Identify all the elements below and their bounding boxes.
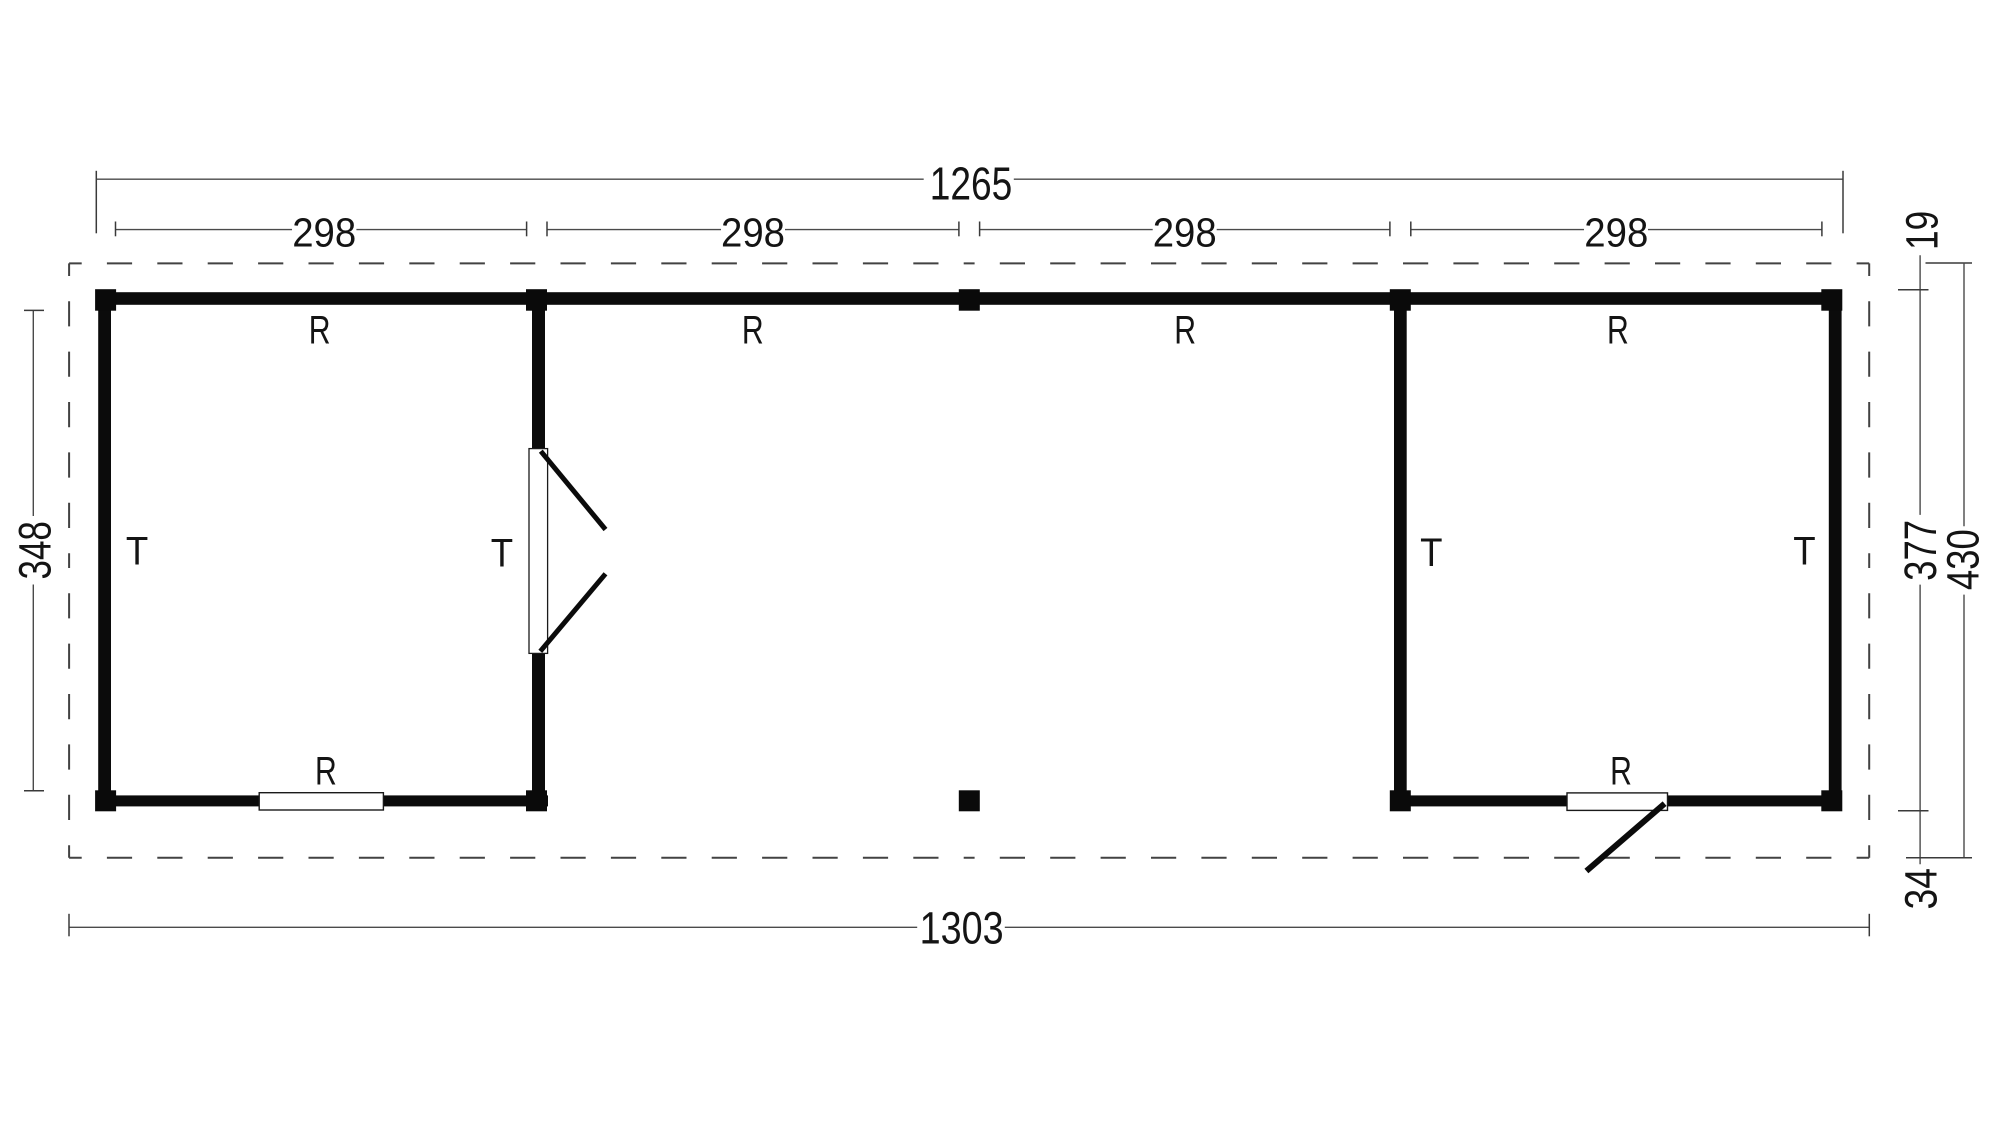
svg-text:19: 19 [1896,211,1947,250]
svg-text:.: . [1992,1113,1995,1124]
svg-text:298: 298 [721,209,785,255]
svg-text:R: R [1607,309,1629,353]
svg-text:T: T [1793,530,1815,574]
svg-text:298: 298 [1153,209,1217,255]
svg-text:T: T [1420,531,1442,575]
svg-text:R: R [1610,750,1632,794]
svg-text:298: 298 [1584,209,1648,255]
svg-text:T: T [491,532,513,576]
svg-text:430: 430 [1937,529,1988,590]
svg-text:T: T [126,530,148,574]
svg-text:R: R [742,309,764,353]
svg-text:298: 298 [292,209,356,255]
svg-text:R: R [1174,309,1196,353]
svg-text:348: 348 [9,521,60,579]
svg-text:R: R [309,309,331,353]
svg-text:34: 34 [1895,868,1946,910]
svg-text:1265: 1265 [930,158,1013,210]
svg-text:1303: 1303 [920,903,1004,954]
svg-text:R: R [315,750,337,794]
